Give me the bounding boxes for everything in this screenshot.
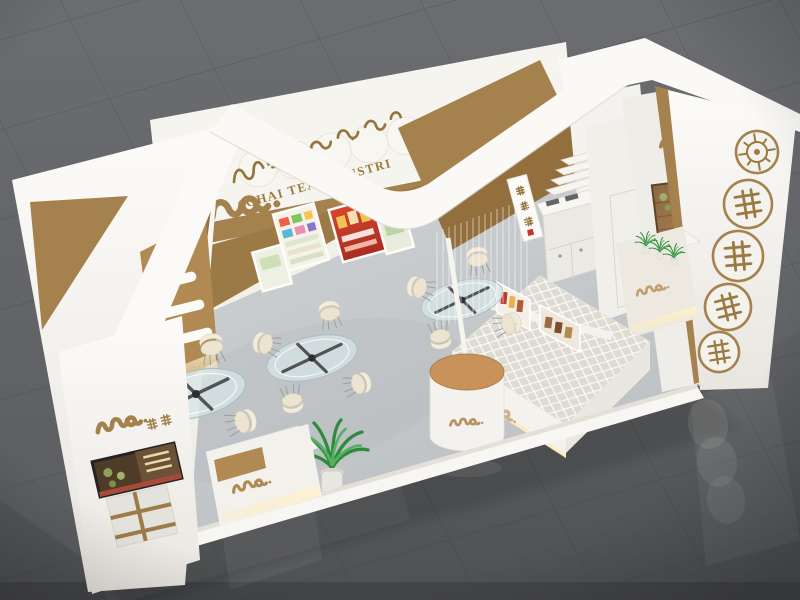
booth-render-stage: 上海唯奇茶叶有 GHAI TEA INDUSTRI xyxy=(0,0,800,600)
booth-render: 上海唯奇茶叶有 GHAI TEA INDUSTRI xyxy=(0,0,800,600)
vignette xyxy=(0,0,800,600)
